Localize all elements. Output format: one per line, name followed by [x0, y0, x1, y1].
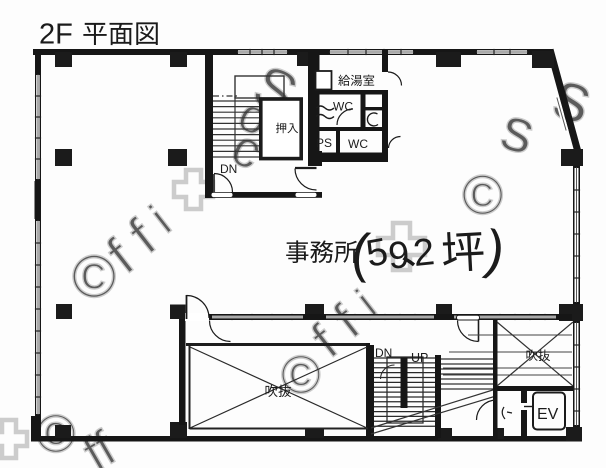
svg-text:©: © — [462, 163, 503, 226]
svg-text:DN: DN — [220, 162, 237, 176]
svg-text:9: 9 — [387, 234, 411, 277]
svg-text:WC: WC — [333, 100, 353, 114]
svg-text:PS: PS — [316, 136, 332, 150]
svg-text:2: 2 — [411, 231, 436, 275]
svg-text:EV: EV — [537, 406, 559, 423]
svg-text:DN: DN — [375, 346, 392, 360]
svg-text:UP: UP — [411, 351, 428, 365]
svg-text:2F: 2F — [39, 19, 73, 51]
svg-text:WC: WC — [348, 137, 368, 151]
svg-text:©: © — [281, 345, 321, 405]
